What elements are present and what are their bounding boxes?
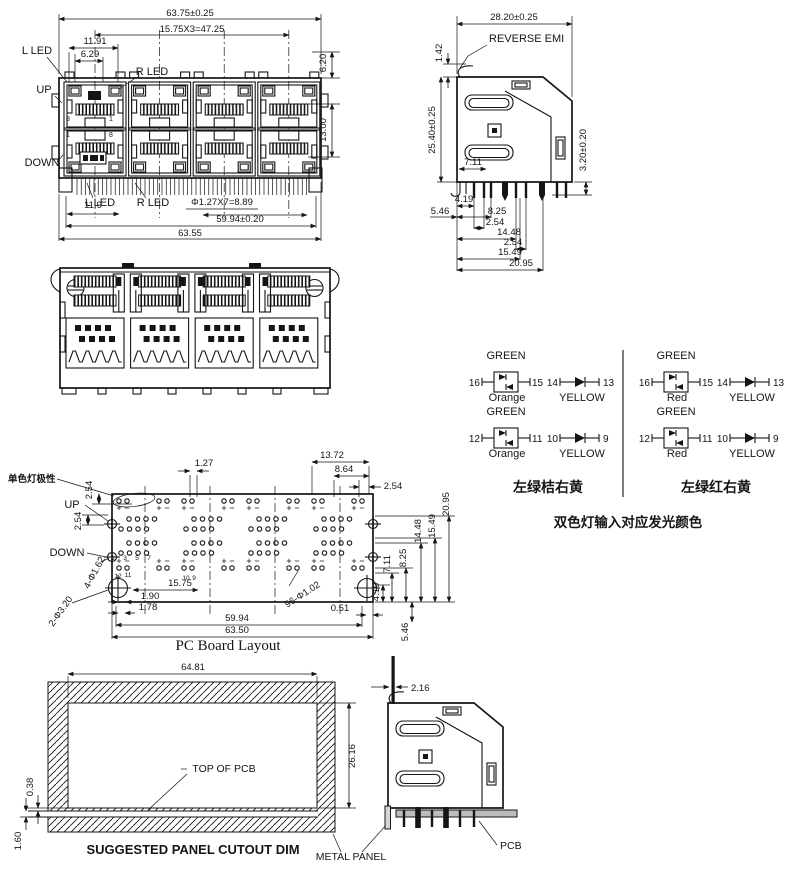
- label-red-1: Red: [667, 392, 687, 404]
- pin-number-8-top: 8: [66, 116, 70, 123]
- pcb-pin-9: 9: [192, 575, 196, 582]
- label-pcb-down: DOWN: [50, 547, 85, 559]
- panel-cutout-view: 64.81 26.16 0.38 1.60 TOP OF PCB SUGGEST…: [13, 662, 387, 863]
- pin-number-1-top: 1: [109, 116, 113, 123]
- pin-number-8-bottom: 8: [109, 132, 113, 139]
- pin-9: 9: [603, 434, 609, 445]
- dim-panel-thickness: 2.16: [411, 683, 430, 694]
- connector-drawing: 63.75±0.25 15.75X3=47.25 11.91 6.29 6.20…: [0, 0, 800, 878]
- dim-2-54-left2: 2.54: [73, 512, 84, 531]
- pcb-pin-5: 5: [135, 555, 139, 562]
- label-r-led-top: R LED: [136, 66, 168, 78]
- label-metal-panel: METAL PANEL: [316, 851, 387, 863]
- front-view: 63.75±0.25 15.75X3=47.25 11.91 6.29 6.20…: [22, 8, 340, 241]
- pin-9r: 9: [773, 434, 779, 445]
- label-pcb: PCB: [500, 840, 522, 852]
- dim-4-19: 4.19: [455, 194, 474, 205]
- dim-side-width: 28.20±0.25: [490, 12, 537, 23]
- rear-port-modules: [66, 274, 318, 368]
- pcb-dim-14-48: 14.48: [413, 519, 424, 543]
- dim-side-height: 25.40±0.25: [427, 106, 438, 153]
- pin-12r: 12: [639, 434, 651, 445]
- dim-0-51: 0.51: [331, 603, 350, 614]
- label-signal-holes: 96-Φ1.02: [283, 579, 322, 610]
- pin-13: 13: [603, 378, 615, 389]
- pin-12: 12: [469, 434, 481, 445]
- metal-panel-bar: [385, 806, 391, 829]
- pin-number-1-bottom: 1: [66, 132, 70, 139]
- dim-2-54-top: 2.54: [384, 481, 403, 492]
- pcb-pin-7: 7: [147, 555, 151, 562]
- label-yellow-4: YELLOW: [729, 448, 775, 460]
- label-reverse-emi: REVERSE EMI: [489, 33, 564, 45]
- dim-1-27: 1.27: [195, 458, 214, 469]
- label-pcb-up: UP: [64, 499, 79, 511]
- mounted-side-view: 2.16 PCB: [371, 656, 522, 852]
- dim-port-pitch: 15.75X3=47.25: [160, 24, 225, 35]
- rear-bottom-tabs: [62, 388, 328, 394]
- label-up: UP: [36, 84, 51, 96]
- pcb-pin-11: 11: [125, 572, 132, 579]
- pin-15: 15: [532, 378, 544, 389]
- pcb-dim-5-46: 5.46: [400, 623, 411, 642]
- pcb-dim-7-11: 7.11: [382, 555, 393, 573]
- pin-15r: 15: [702, 378, 714, 389]
- caption-right-group: 左绿红右黄: [680, 479, 751, 495]
- dim-row-pitch: 13.00: [318, 118, 329, 142]
- label-yellow-3: YELLOW: [729, 392, 775, 404]
- dim-7-11: 7.11: [464, 157, 482, 168]
- dim-led-span: 11.91: [83, 36, 106, 47]
- pcb-bar: [396, 810, 517, 817]
- pin-11r: 11: [702, 434, 713, 445]
- emi-shield-fingers: [77, 178, 307, 195]
- dim-shield-span: 59.94±0.20: [216, 214, 263, 225]
- label-green-4: GREEN: [656, 406, 695, 418]
- label-r-led-bottom: R LED: [137, 197, 169, 209]
- engineering-drawing-page: 63.75±0.25 15.75X3=47.25 11.91 6.29 6.20…: [0, 0, 800, 878]
- label-red-2: Red: [667, 448, 687, 460]
- label-down: DOWN: [25, 157, 60, 169]
- pin-13r: 13: [773, 378, 785, 389]
- pin-10r: 10: [717, 434, 729, 445]
- label-l-led-top: L LED: [22, 45, 52, 57]
- pcb-pin-12: 12: [114, 573, 122, 580]
- rear-view: [51, 263, 339, 394]
- dim-63-50: 63.50: [225, 625, 249, 636]
- label-l-led-bottom: L LED: [85, 197, 115, 209]
- dim-pin-pitch: Φ1.27X7=8.89: [191, 197, 253, 208]
- dim-15-49: 15.49: [498, 247, 522, 258]
- label-mount-holes: 2-Φ3.20: [47, 594, 76, 629]
- pcb-pin-3: 3: [123, 555, 127, 562]
- dim-cutout-width: 64.81: [181, 662, 205, 673]
- pcb-dim-20-95: 20.95: [441, 492, 452, 516]
- dim-top-offset: 6.20: [318, 54, 329, 73]
- dim-1-78: 1.78: [139, 602, 158, 613]
- dim-pcb-gap: 0.38: [25, 778, 36, 797]
- pcb-layout-view: 单色灯极性 UP DOWN 4-Φ1.62 2-Φ3.20 96-Φ1.02 1…: [8, 450, 455, 654]
- led-diagram-left: GREEN 16 15 Orange 14 13 YELLOW GREEN 12…: [469, 350, 615, 495]
- pin-14r: 14: [717, 378, 729, 389]
- dim-1-90: 1.90: [141, 591, 160, 602]
- pcb-pin-1: 1: [111, 555, 115, 562]
- label-green-1: GREEN: [486, 350, 525, 362]
- panel-pin: [392, 656, 395, 704]
- panel-cutout-title: SUGGESTED PANEL CUTOUT DIM: [86, 842, 299, 857]
- dim-13-72: 13.72: [320, 450, 344, 461]
- pin-11: 11: [532, 434, 543, 445]
- label-yellow-1: YELLOW: [559, 392, 605, 404]
- dim-standoff: 3.20±0.20: [578, 129, 589, 171]
- pin-14: 14: [547, 378, 559, 389]
- dim-emi-height: 1.42: [434, 44, 445, 63]
- pin-10: 10: [547, 434, 559, 445]
- led-color-note: 双色灯输入对应发光颜色: [554, 514, 703, 530]
- dim-5-46: 5.46: [431, 206, 450, 217]
- label-green-3: GREEN: [656, 350, 695, 362]
- caption-left-group: 左绿桔右黄: [512, 479, 583, 495]
- dim-20-95: 20.95: [509, 258, 533, 269]
- label-yellow-2: YELLOW: [559, 448, 605, 460]
- dim-pcb-thickness: 1.60: [13, 832, 24, 851]
- label-orange-1: Orange: [489, 392, 526, 404]
- dim-overall-width: 63.75±0.25: [166, 8, 213, 19]
- pcb-dim-15-49: 15.49: [427, 514, 438, 538]
- dim-cutout-height: 26.16: [347, 744, 358, 768]
- dim-15-75: 15.75: [168, 578, 192, 589]
- label-green-2: GREEN: [486, 406, 525, 418]
- label-top-of-pcb: TOP OF PCB: [192, 763, 255, 775]
- pcb-dim-8-25: 8.25: [398, 549, 409, 568]
- pcb-layout-title: PC Board Layout: [176, 638, 282, 654]
- pin-16r: 16: [639, 378, 651, 389]
- pcb-dim-4-19: 4.19: [371, 583, 382, 602]
- side-view: 28.20±0.25 REVERSE EMI 1.42 25.40±0.25 3…: [427, 12, 592, 271]
- rj45-ports: [64, 82, 320, 176]
- led-diagram-right: GREEN 16 15 Red 14 13 YELLOW GREEN 12 11…: [639, 350, 785, 495]
- dim-59-94: 59.94: [225, 613, 249, 624]
- dim-led-offset: 6.29: [81, 49, 100, 60]
- dim-8-64: 8.64: [335, 464, 354, 475]
- pin-16: 16: [469, 378, 481, 389]
- dim-body-width: 63.55: [178, 228, 202, 239]
- dim-2-54-left1: 2.54: [84, 481, 95, 500]
- dim-8-25: 8.25: [488, 206, 507, 217]
- label-orange-2: Orange: [489, 448, 526, 460]
- label-polarity-note: 单色灯极性: [8, 473, 56, 485]
